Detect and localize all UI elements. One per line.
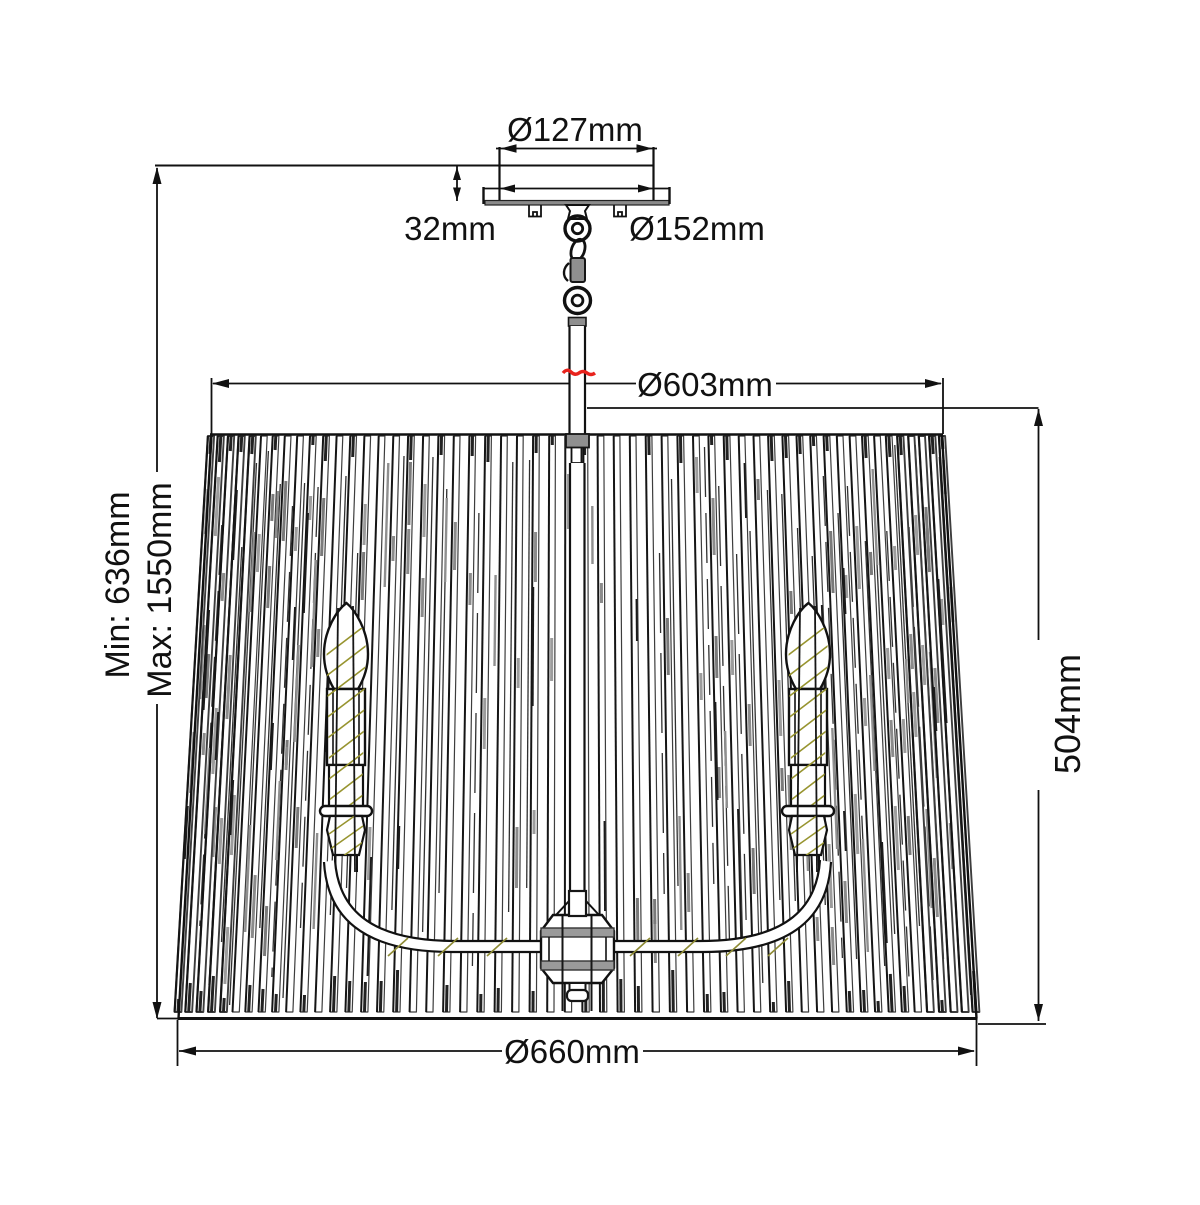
svg-text:Ø152mm: Ø152mm — [629, 210, 765, 247]
svg-text:Ø660mm: Ø660mm — [504, 1033, 640, 1070]
svg-text:Ø603mm: Ø603mm — [637, 366, 773, 403]
svg-text:504mm: 504mm — [1047, 654, 1088, 774]
svg-text:32mm: 32mm — [404, 210, 496, 247]
svg-text:Ø127mm: Ø127mm — [507, 111, 643, 148]
svg-text:Max: 1550mm: Max: 1550mm — [141, 482, 179, 697]
svg-text:Min: 636mm: Min: 636mm — [99, 491, 137, 678]
